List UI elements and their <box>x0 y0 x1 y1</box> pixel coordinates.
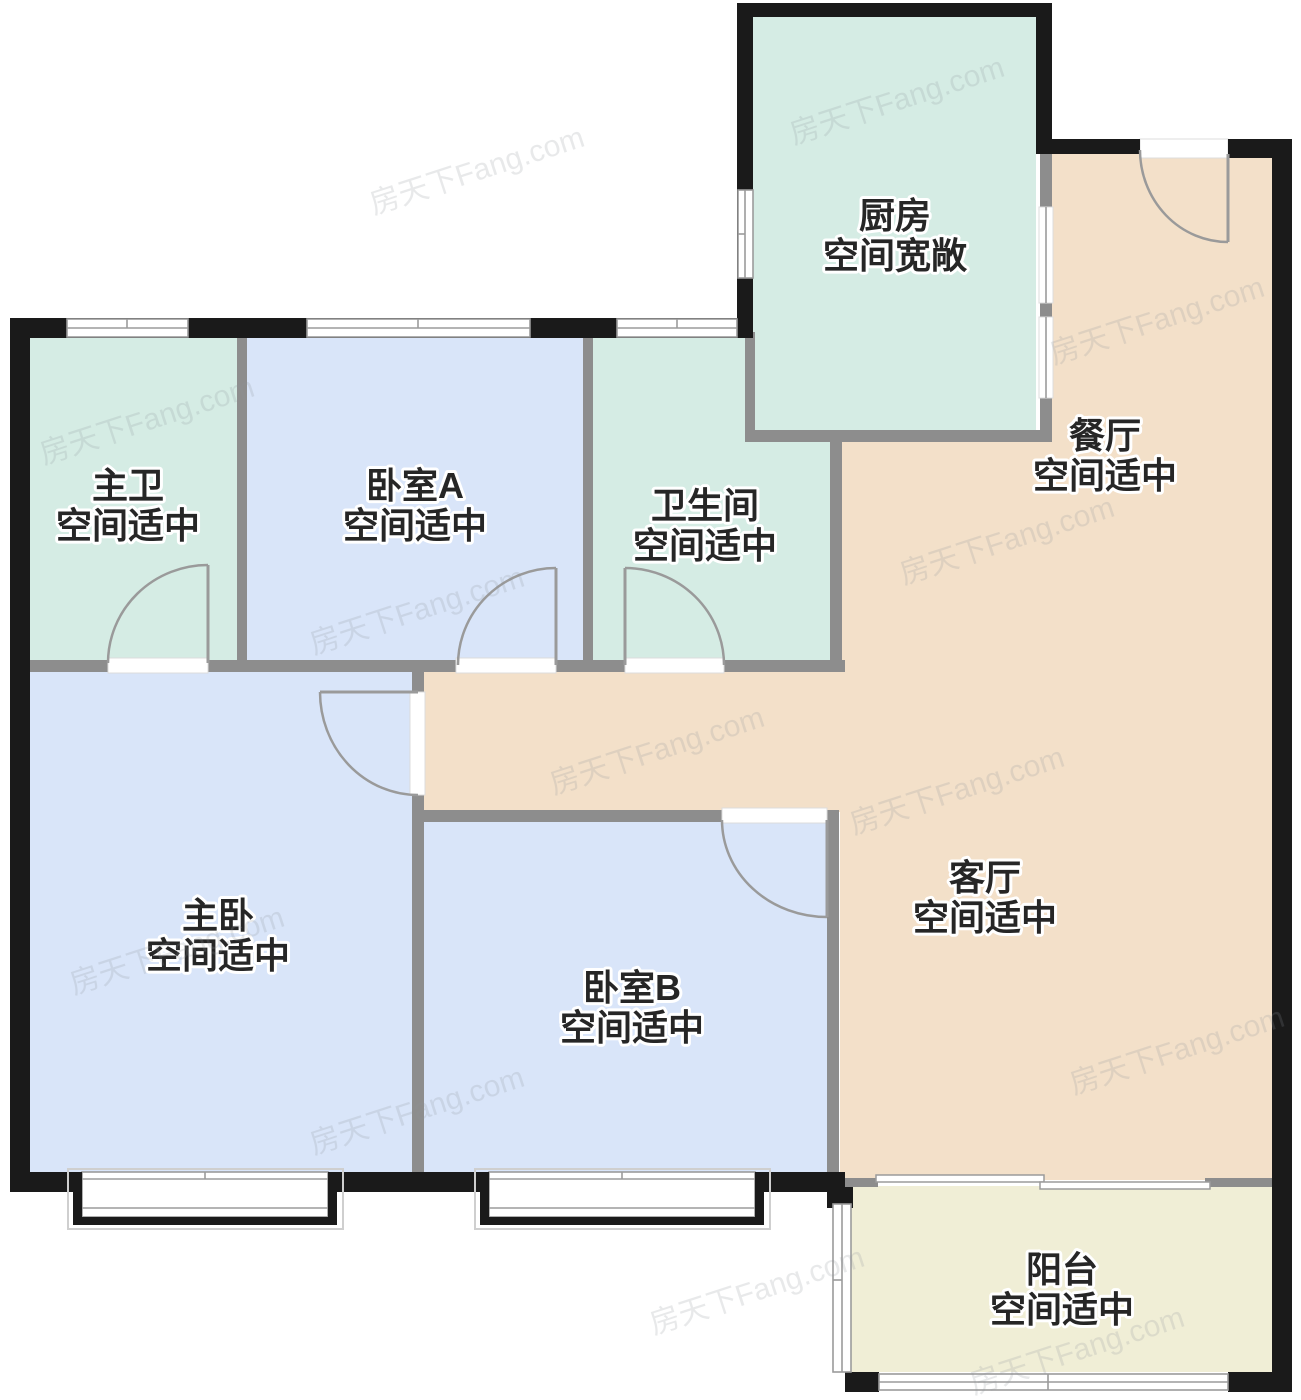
wall-kitchen-right-lower <box>1040 398 1052 442</box>
watermark: 房天下Fang.com <box>366 121 589 221</box>
wall-dining-top <box>1036 139 1140 154</box>
wall-bathroom-dining <box>830 442 842 667</box>
bay2-frame-bottom <box>480 1217 764 1225</box>
opening-bathroom <box>625 658 724 673</box>
bay-window-bedroom-b <box>475 1169 770 1229</box>
kitchen-pass-opening <box>1039 207 1053 398</box>
sliding-door-left-jamb <box>845 1178 878 1187</box>
opening-entry <box>1140 139 1228 158</box>
label-master-bath-name: 主卫 <box>92 465 164 506</box>
wall-balcony-bottom-left-post <box>845 1372 879 1392</box>
opening-master-bath <box>108 658 208 673</box>
wall-kitchen-right-mid <box>1040 303 1052 317</box>
wall-kitchen-left <box>737 3 753 338</box>
label-bedroom-a-desc: 空间适中 <box>343 505 487 546</box>
label-bedroom-b-name: 卧室B <box>583 967 681 1008</box>
label-living-desc: 空间适中 <box>913 897 1057 938</box>
label-living-name: 客厅 <box>949 857 1021 898</box>
wall-kitchen-bottom <box>745 430 1052 442</box>
bay1-frame-bottom <box>73 1217 337 1225</box>
bay-window-master-bedroom <box>68 1169 343 1229</box>
wall-balcony-bottom-right-post <box>1228 1372 1292 1392</box>
wall-left-exterior <box>10 318 30 1192</box>
wall-kitchen-right-exterior <box>1036 3 1052 153</box>
floorplan-canvas: 厨房 空间宽敞 餐厅 空间适中 主卫 空间适中 卧室A 空间适中 卫生间 空间适… <box>0 0 1301 1400</box>
opening-master-bedroom <box>410 692 425 795</box>
wall-bathroom-kitchen <box>745 332 755 442</box>
opening-bedroom-b <box>722 808 827 823</box>
sliding-door-panel-2 <box>1040 1182 1210 1189</box>
opening-bedroom-a <box>456 658 556 673</box>
sliding-door-panel-1 <box>876 1175 1044 1182</box>
wall-bedroomB-living <box>827 810 839 1172</box>
wall-right-exterior <box>1272 139 1292 1392</box>
label-master-bath-desc: 空间适中 <box>56 505 200 546</box>
label-kitchen-name: 厨房 <box>859 195 931 236</box>
wall-bottom-seg2 <box>337 1172 480 1192</box>
wall-bedroomA-bathroom <box>583 332 593 667</box>
floorplan-svg: 厨房 空间宽敞 餐厅 空间适中 主卫 空间适中 卧室A 空间适中 卫生间 空间适… <box>0 0 1301 1400</box>
label-bathroom-name: 卫生间 <box>651 485 759 526</box>
label-bathroom-desc: 空间适中 <box>633 525 777 566</box>
label-balcony-name: 阳台 <box>1026 1249 1098 1290</box>
wall-kitchen-right-upper <box>1040 152 1052 207</box>
label-bedroom-b-desc: 空间适中 <box>560 1007 704 1048</box>
label-dining-desc: 空间适中 <box>1033 455 1177 496</box>
label-bedroom-a-name: 卧室A <box>366 465 464 506</box>
wall-bottom-seg1 <box>10 1172 73 1192</box>
label-dining-name: 餐厅 <box>1069 415 1141 456</box>
wall-kitchen-top <box>737 3 1052 17</box>
label-kitchen-desc: 空间宽敞 <box>823 235 968 276</box>
sliding-door-right-jamb <box>1205 1178 1272 1187</box>
